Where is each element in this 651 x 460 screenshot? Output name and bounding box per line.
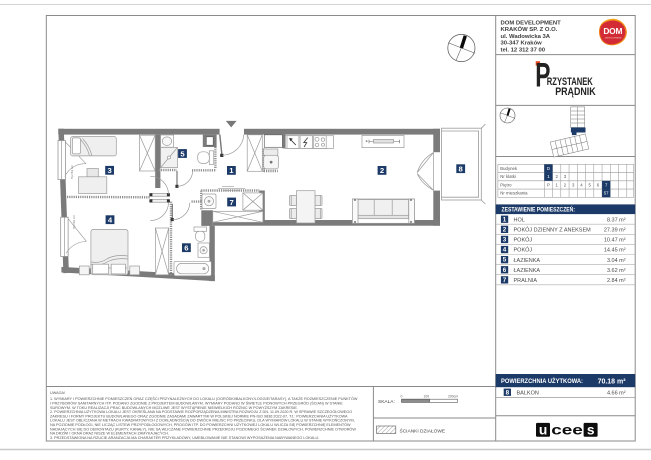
- svg-text:s: s: [587, 423, 595, 438]
- svg-text:u: u: [539, 423, 547, 438]
- svg-text:7: 7: [503, 277, 507, 284]
- svg-text:6: 6: [597, 183, 600, 188]
- svg-text:3.04 m²: 3.04 m²: [607, 258, 626, 264]
- svg-text:Nr klatki: Nr klatki: [500, 174, 516, 179]
- svg-text:ul. Wadowicka 3A: ul. Wadowicka 3A: [501, 34, 551, 40]
- svg-text:NADAJĄCYCH SIĘ DO DEMONTAŻU (K: NADAJĄCYCH SIĘ DO DEMONTAŻU (KURTY, KANA…: [50, 426, 356, 431]
- svg-text:0: 0: [401, 395, 403, 399]
- svg-text:27.39 m²: 27.39 m²: [604, 228, 626, 234]
- svg-text:POKÓJ: POKÓJ: [514, 237, 533, 244]
- svg-text:4.66 m²: 4.66 m²: [607, 390, 626, 396]
- svg-text:NA POZIOMIE PODŁOGI, NIE LICZĄ: NA POZIOMIE PODŁOGI, NIE LICZĄC LISTEW P…: [50, 422, 351, 427]
- svg-text:6: 6: [503, 267, 507, 274]
- svg-text:2. POWIERZCHNIA UŻYTKOWA LOKAL: 2. POWIERZCHNIA UŻYTKOWA LOKALU JEST OKR…: [50, 409, 352, 414]
- svg-text:2: 2: [556, 174, 559, 179]
- svg-text:P: P: [547, 183, 550, 188]
- svg-text:POKÓJ DZIENNY Z ANEKSEM: POKÓJ DZIENNY Z ANEKSEM: [514, 227, 592, 234]
- svg-text:8.37 m²: 8.37 m²: [607, 217, 626, 223]
- svg-text:57: 57: [604, 191, 609, 196]
- svg-text:Piętro: Piętro: [500, 183, 512, 188]
- svg-text:5: 5: [503, 257, 507, 264]
- svg-text:3.62 m²: 3.62 m²: [607, 268, 626, 274]
- svg-text:tel. 12 312 37 00: tel. 12 312 37 00: [501, 47, 546, 53]
- svg-text:30-347 Kraków: 30-347 Kraków: [501, 41, 543, 47]
- svg-text:BALKON: BALKON: [517, 390, 539, 396]
- svg-text:4: 4: [580, 183, 583, 188]
- svg-text:4: 4: [108, 216, 113, 225]
- svg-text:70.18 m²: 70.18 m²: [598, 378, 627, 385]
- svg-text:5: 5: [180, 149, 185, 158]
- svg-text:1: 1: [556, 183, 559, 188]
- svg-text:SKALA:: SKALA:: [378, 399, 395, 405]
- svg-text:UWAGA!: UWAGA!: [50, 391, 65, 395]
- svg-text:3. PRZEDSTAWIONA NA RZUCIE ARA: 3. PRZEDSTAWIONA NA RZUCIE ARANŻACJA MA …: [50, 435, 319, 440]
- svg-text:KRAKÓW SP. Z O.O.: KRAKÓW SP. Z O.O.: [501, 25, 558, 33]
- svg-text:10.47 m²: 10.47 m²: [604, 238, 626, 244]
- svg-text:6: 6: [184, 244, 188, 253]
- svg-text:ŚCIANKI DZIAŁOWE: ŚCIANKI DZIAŁOWE: [400, 426, 446, 434]
- svg-text:5: 5: [589, 183, 592, 188]
- svg-text:ŁAZIENKA: ŁAZIENKA: [514, 258, 541, 264]
- svg-text:Hp=59 cm: Hp=59 cm: [70, 164, 74, 179]
- svg-text:DOM: DOM: [603, 26, 622, 36]
- svg-text:3: 3: [503, 237, 507, 244]
- svg-text:3: 3: [572, 183, 575, 188]
- svg-text:HOL: HOL: [514, 217, 525, 223]
- svg-text:1: 1: [229, 166, 234, 175]
- svg-text:2: 2: [380, 166, 384, 175]
- svg-text:1: 1: [503, 216, 507, 223]
- svg-text:DOM DEVELOPMENT: DOM DEVELOPMENT: [501, 21, 562, 27]
- svg-text:POWIERZCHNIA UŻYTKOWA:: POWIERZCHNIA UŻYTKOWA:: [501, 377, 583, 385]
- svg-text:ZAKRESU I FORMY PROJEKTU BUDOW: ZAKRESU I FORMY PROJEKTU BUDOWLANEGO ORA…: [50, 413, 348, 418]
- svg-text:DEVELOPMENT: DEVELOPMENT: [605, 38, 622, 40]
- svg-text:3: 3: [564, 174, 567, 179]
- svg-text:8: 8: [506, 390, 510, 397]
- svg-text:2: 2: [564, 183, 567, 188]
- svg-text:200cm: 200cm: [448, 395, 458, 399]
- svg-text:Budynek: Budynek: [500, 166, 518, 171]
- svg-text:LOKALU JEST OBLICZANA W METRAC: LOKALU JEST OBLICZANA W METRACH KWADRATO…: [50, 418, 355, 423]
- svg-text:7: 7: [229, 198, 233, 207]
- svg-text:4: 4: [503, 247, 507, 254]
- svg-text:3: 3: [107, 166, 111, 175]
- svg-text:Nr mieszkania: Nr mieszkania: [500, 191, 528, 196]
- svg-text:PRĄDNIK: PRĄDNIK: [555, 86, 596, 98]
- svg-text:ZESTAWIENIE POMIESZCZEŃ:: ZESTAWIENIE POMIESZCZEŃ:: [502, 205, 576, 214]
- svg-text:2.84 m²: 2.84 m²: [607, 278, 626, 284]
- svg-text:2: 2: [503, 226, 507, 233]
- svg-text:1. WYMIARY I POWIERZCHNIE POMI: 1. WYMIARY I POWIERZCHNIE POMIESZCZEŃ OR…: [50, 396, 358, 401]
- svg-text:PRALNIA: PRALNIA: [514, 278, 538, 284]
- svg-text:Hp=59 cm: Hp=59 cm: [72, 214, 76, 229]
- svg-text:8: 8: [459, 165, 464, 174]
- svg-text:100: 100: [424, 395, 430, 399]
- svg-text:SUROWYM. W TOKU REALIZACJI PRA: SUROWYM. W TOKU REALIZACJI PRAC BUDOWLAN…: [50, 405, 298, 410]
- svg-text:D: D: [547, 166, 550, 171]
- svg-text:14.45 m²: 14.45 m²: [604, 248, 626, 254]
- svg-text:I PRZYBORÓW SANITARNYCH ITP. P: I PRZYBORÓW SANITARNYCH ITP. PODANO ZGOD…: [50, 401, 343, 406]
- svg-text:ŁAZIENKA: ŁAZIENKA: [514, 268, 541, 274]
- svg-text:cee: cee: [551, 423, 583, 438]
- svg-text:POKÓJ: POKÓJ: [514, 247, 533, 254]
